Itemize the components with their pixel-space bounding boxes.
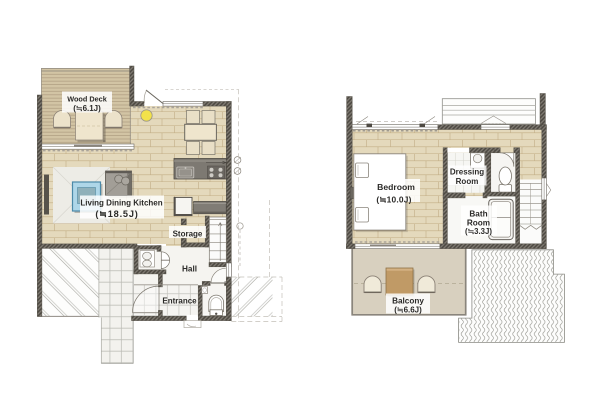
svg-text:Wood Deck: Wood Deck xyxy=(67,95,108,104)
svg-text:(≒3.3J): (≒3.3J) xyxy=(465,227,492,236)
svg-text:Hall: Hall xyxy=(182,265,197,274)
svg-text:Entrance: Entrance xyxy=(162,297,197,306)
svg-text:(≒18.5J): (≒18.5J) xyxy=(95,209,138,219)
svg-text:Storage: Storage xyxy=(173,229,203,238)
svg-text:Bedroom: Bedroom xyxy=(377,182,415,192)
svg-text:(≒6.1J): (≒6.1J) xyxy=(73,104,101,113)
svg-text:Room: Room xyxy=(456,177,479,186)
svg-text:(≒6.6J): (≒6.6J) xyxy=(394,305,422,314)
svg-text:(≒10.0J): (≒10.0J) xyxy=(376,195,411,205)
svg-text:Bath: Bath xyxy=(469,210,487,219)
svg-text:Dressing: Dressing xyxy=(450,168,484,177)
svg-text:Balcony: Balcony xyxy=(392,297,424,306)
svg-text:Living Dining Kitchen: Living Dining Kitchen xyxy=(80,199,162,208)
